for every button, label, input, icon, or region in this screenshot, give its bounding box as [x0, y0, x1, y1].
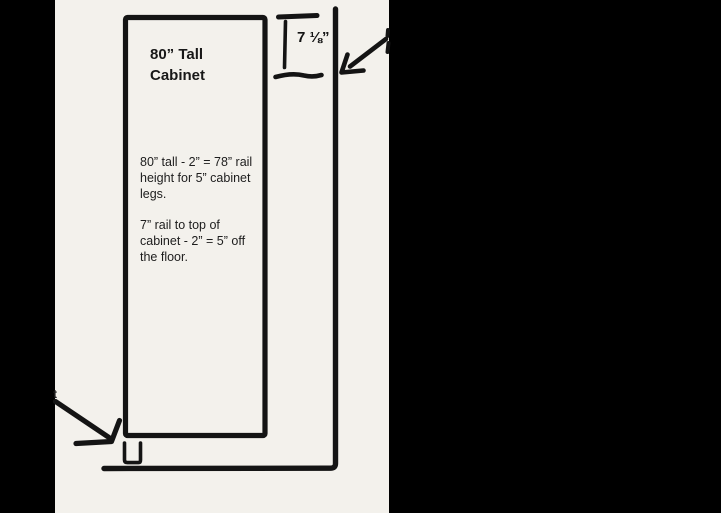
cabinet-title-line: 80” Tall [150, 44, 205, 65]
top-gap-dimension-label: 7 ⅛” [297, 29, 330, 46]
note-rail-height: 80” tall - 2” = 78” rail height for 5” c… [140, 154, 252, 202]
cabinet-title-line: Cabinet [150, 65, 205, 86]
letterboxed-stage: 80” Tall Cabinet 80” tall - 2” = 78” rai… [0, 0, 721, 513]
note-rail-to-top: 7” rail to top of cabinet - 2” = 5” off … [140, 217, 252, 265]
left-edge-cutoff-text: t [53, 387, 57, 401]
cabinet-title: 80” Tall Cabinet [150, 44, 205, 86]
cabinet-notes: 80” tall - 2” = 78” rail height for 5” c… [140, 154, 252, 280]
